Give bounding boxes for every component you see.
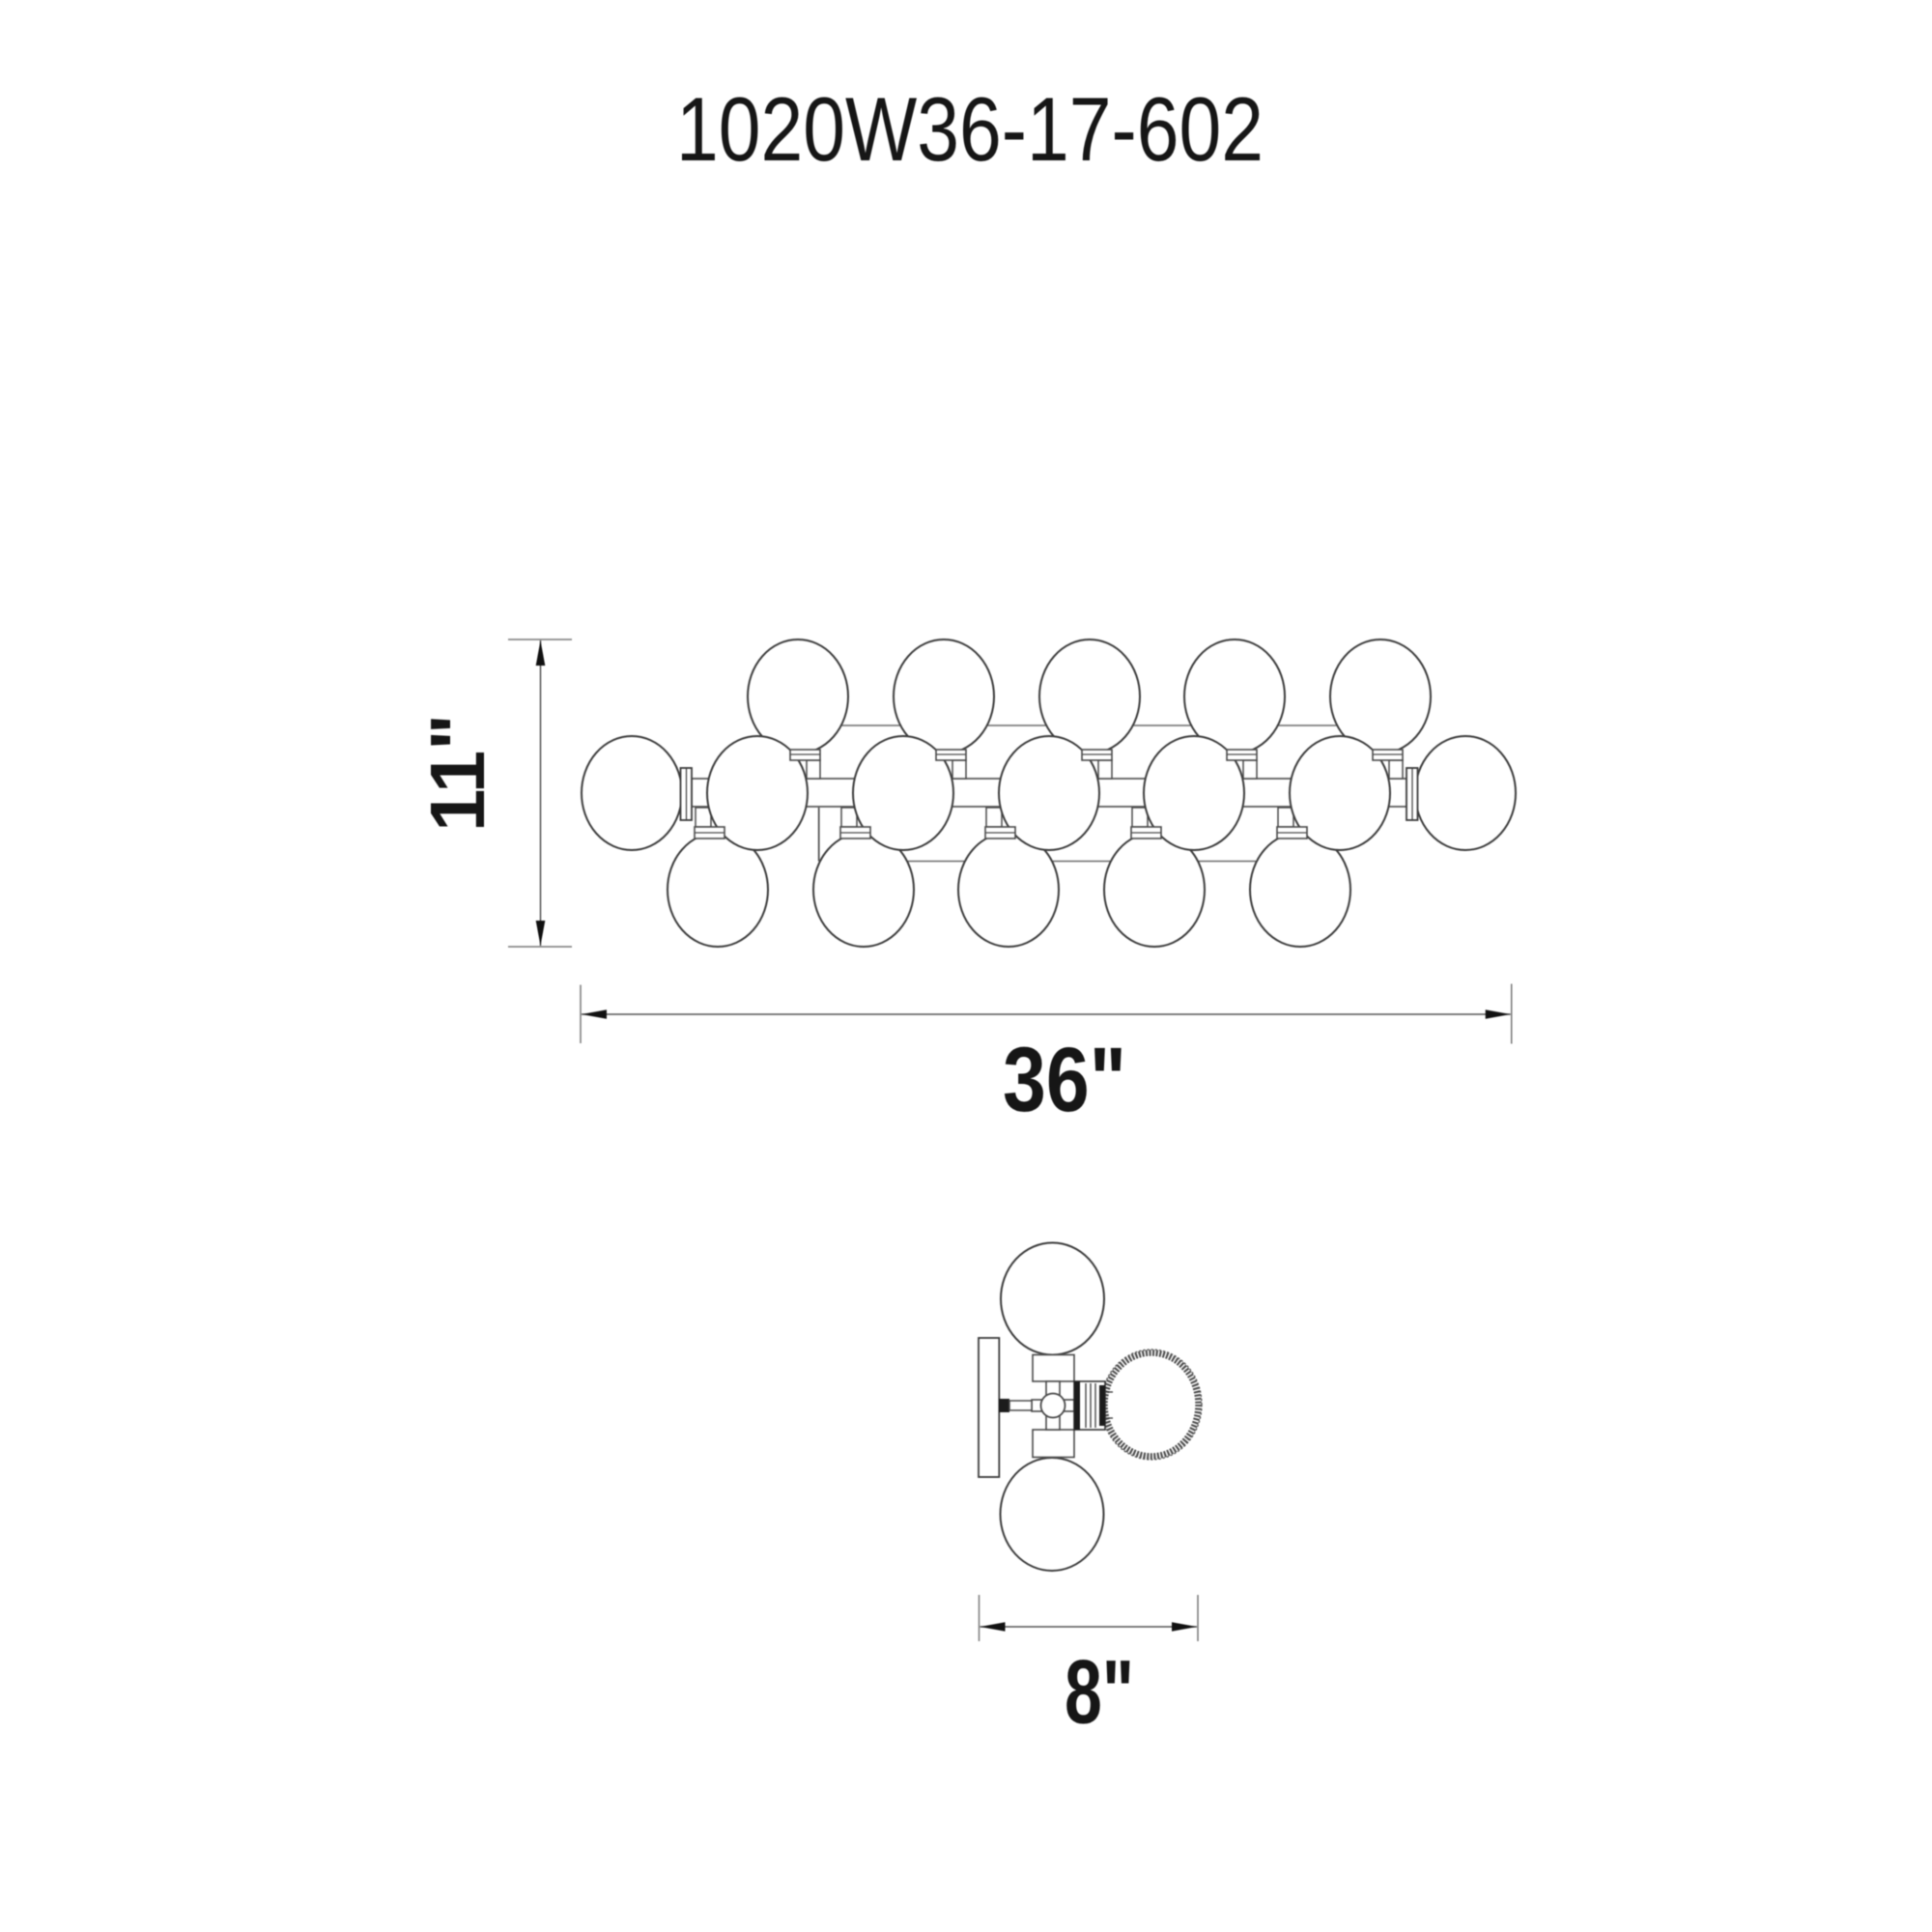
svg-text:1020W36-17-602: 1020W36-17-602 bbox=[676, 78, 1264, 180]
svg-text:11": 11" bbox=[414, 714, 500, 832]
svg-text:8": 8" bbox=[1065, 1641, 1134, 1743]
svg-text:36": 36" bbox=[1003, 1029, 1126, 1131]
